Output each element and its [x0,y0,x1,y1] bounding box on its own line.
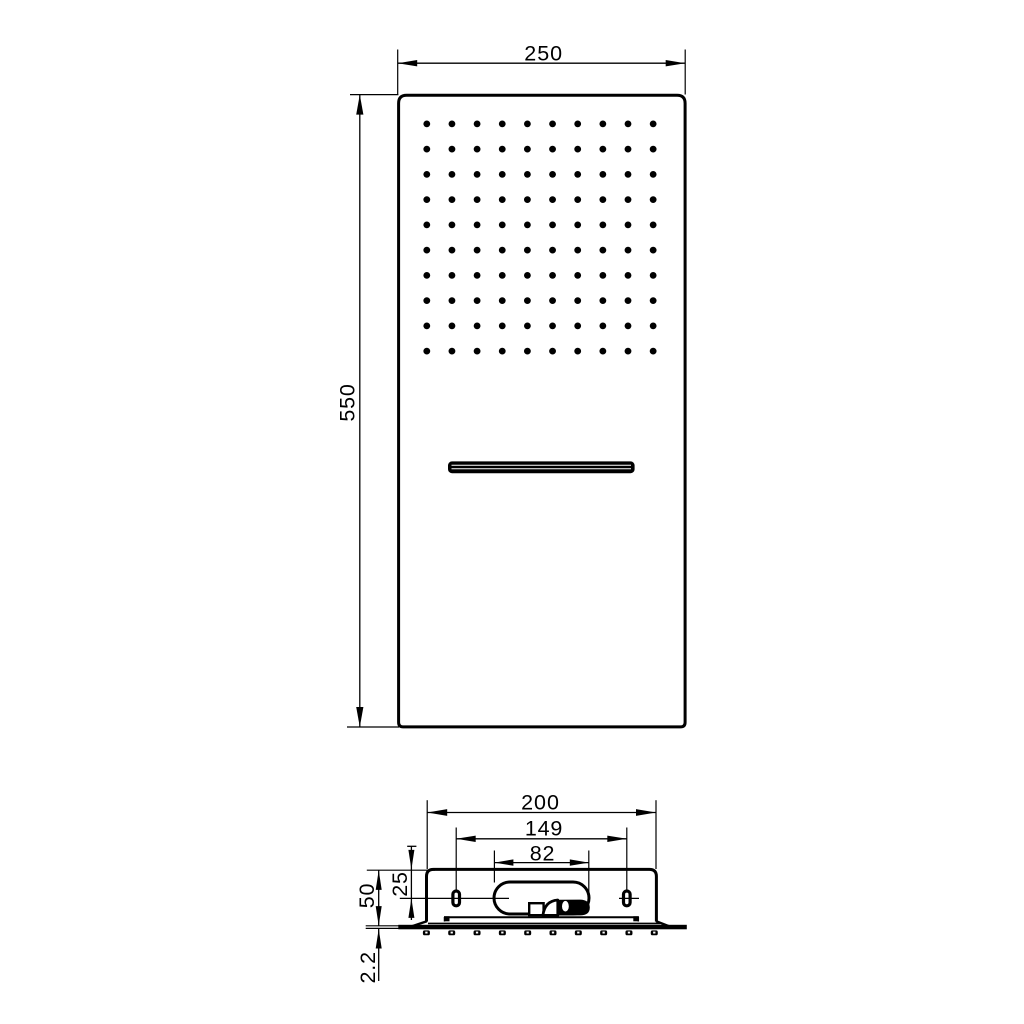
svg-text:50: 50 [355,883,379,909]
svg-text:2.2: 2.2 [356,951,380,983]
svg-text:550: 550 [336,383,360,421]
svg-text:82: 82 [530,842,556,866]
svg-text:25: 25 [388,871,412,897]
svg-text:250: 250 [524,42,563,66]
svg-text:149: 149 [525,817,563,841]
svg-text:200: 200 [521,791,560,815]
